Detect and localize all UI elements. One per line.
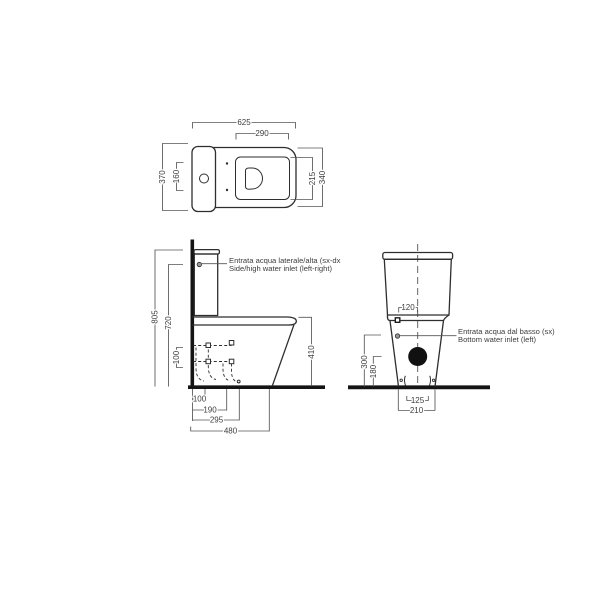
bottom-inlet-circle-icon bbox=[395, 334, 399, 338]
dim-top-seat-opening-width: 290 bbox=[255, 129, 269, 138]
side-seat-profile bbox=[193, 317, 297, 325]
hinge-dot bbox=[226, 162, 228, 164]
front-view: 120 300 180 125 210 Entrata acqua dal ba… bbox=[348, 244, 555, 415]
side-inlet-square-icon bbox=[395, 318, 400, 323]
hinge-dot bbox=[226, 189, 228, 191]
dim-side-bowl-height: 410 bbox=[307, 345, 316, 359]
dim-front-drain-height: 180 bbox=[369, 364, 378, 378]
dim-front-inlet-offset: 120 bbox=[401, 303, 415, 312]
dim-side-pipe-spacing: 100 bbox=[172, 350, 181, 364]
side-inlet-note-en: Side/high water inlet (left-right) bbox=[229, 264, 332, 273]
dim-side-overall-height: 805 bbox=[151, 310, 160, 324]
dim-front-side-inlet-height: 300 bbox=[360, 355, 369, 369]
technical-drawing-canvas: 625 290 370 160 215 340 bbox=[0, 0, 600, 600]
dim-side-chain-1: 100 bbox=[193, 395, 207, 404]
dim-top-overall-depth: 370 bbox=[158, 170, 167, 184]
dim-top-overall-width: 625 bbox=[237, 118, 251, 127]
bottom-inlet-note-en: Bottom water inlet (left) bbox=[458, 335, 537, 344]
side-tank-lid bbox=[194, 250, 219, 254]
plan-tank bbox=[192, 147, 216, 212]
dim-side-chain-2: 190 bbox=[203, 406, 217, 415]
dim-side-chain-3: 295 bbox=[210, 416, 224, 425]
dim-top-opening-depth: 215 bbox=[308, 171, 317, 185]
plan-bowl-shape bbox=[246, 168, 263, 189]
dim-front-fixing-span: 125 bbox=[411, 396, 425, 405]
side-water-inlet-icon bbox=[197, 262, 201, 266]
dim-top-tank-span: 160 bbox=[172, 169, 181, 183]
side-view-dimensions: 805 720 100 410 100 190 295 480 Entrata … bbox=[151, 250, 341, 436]
dim-side-inlet-height: 720 bbox=[164, 316, 173, 330]
top-view-dimensions: 625 290 370 160 215 340 bbox=[158, 118, 327, 211]
dim-front-base-width: 210 bbox=[410, 406, 424, 415]
drain-hole-icon bbox=[408, 347, 427, 366]
top-view-outline bbox=[192, 147, 296, 212]
plumbing-dashed bbox=[193, 341, 240, 384]
dim-top-seat-depth: 340 bbox=[318, 170, 327, 184]
dim-side-chain-4: 480 bbox=[224, 427, 238, 436]
top-view: 625 290 370 160 215 340 bbox=[158, 118, 327, 212]
dimension-drawing: 625 290 370 160 215 340 bbox=[0, 0, 600, 600]
side-bowl-front-slope bbox=[273, 325, 294, 385]
side-view: 805 720 100 410 100 190 295 480 Entrata … bbox=[151, 240, 341, 436]
